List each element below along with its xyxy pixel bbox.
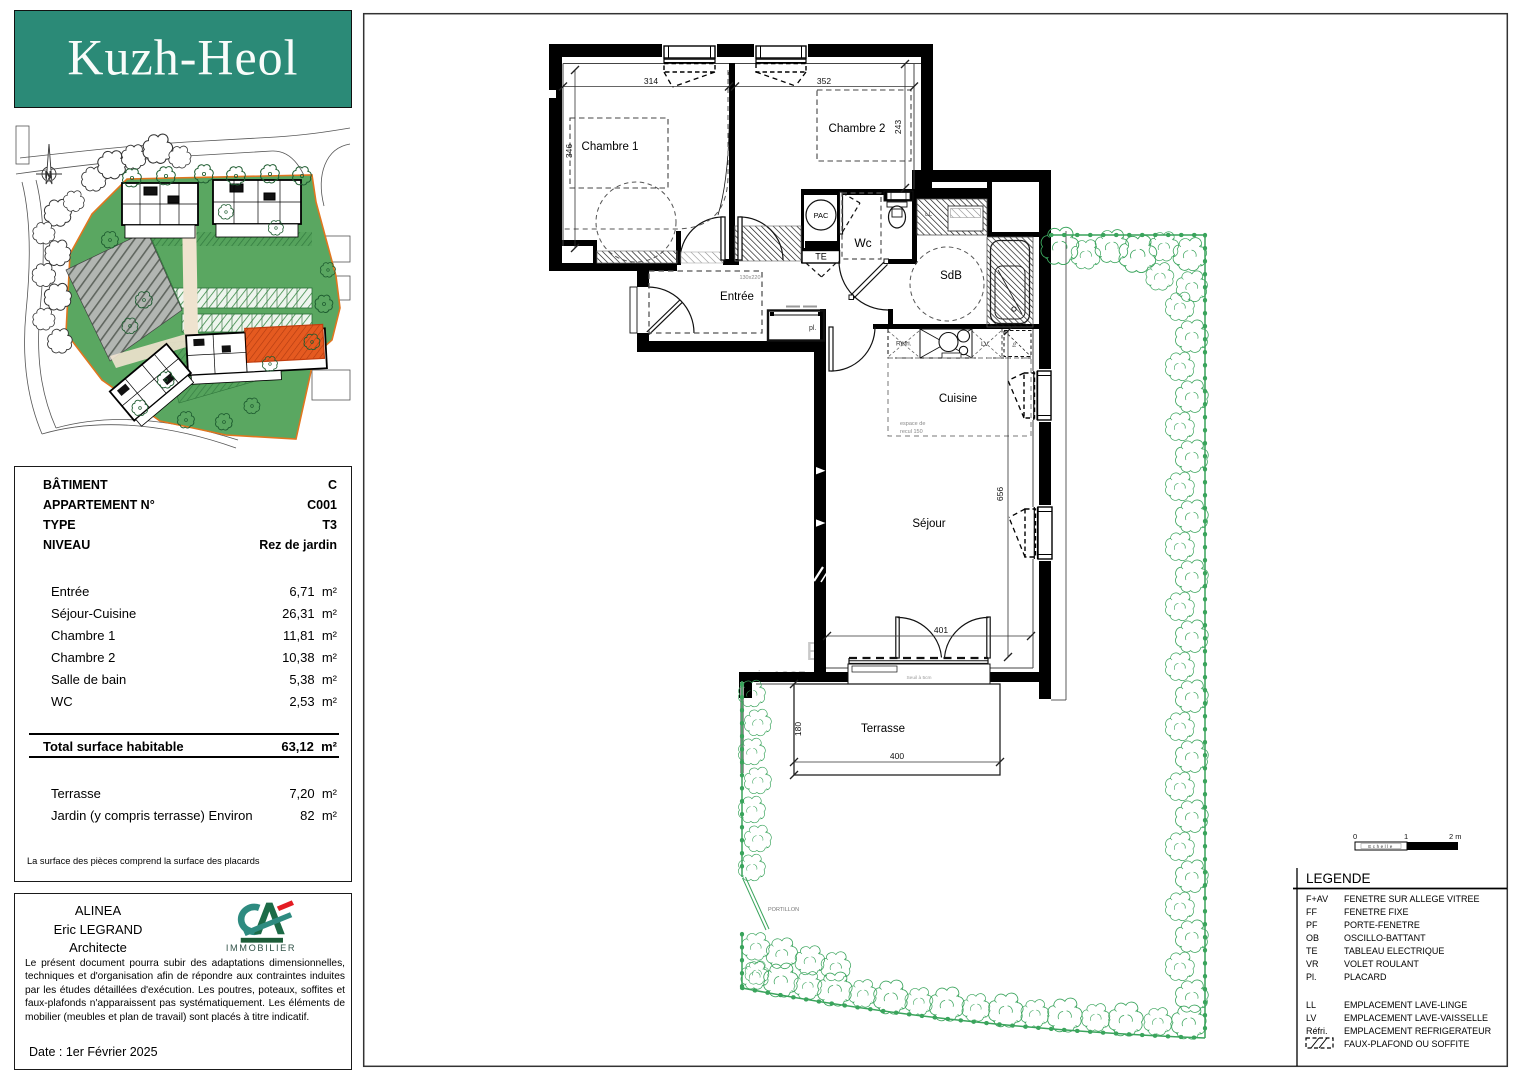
svg-text:PORTILLON: PORTILLON bbox=[768, 907, 799, 913]
svg-text:FENETRE SUR ALLEGE VITREE: FENETRE SUR ALLEGE VITREE bbox=[1344, 894, 1480, 904]
svg-text:656: 656 bbox=[995, 487, 1005, 501]
svg-text:TE: TE bbox=[1306, 946, 1318, 956]
svg-text:Chambre 1: Chambre 1 bbox=[582, 141, 639, 153]
svg-text:OB: OB bbox=[1306, 933, 1319, 943]
svg-text:Echelle: Echelle bbox=[1368, 844, 1394, 849]
svg-text:PORTE-FENETRE: PORTE-FENETRE bbox=[1344, 920, 1420, 930]
svg-text:OSCILLO-BATTANT: OSCILLO-BATTANT bbox=[1344, 933, 1426, 943]
svg-text:EMPLACEMENT LAVE-VAISSELLE: EMPLACEMENT LAVE-VAISSELLE bbox=[1344, 1013, 1488, 1023]
svg-text:400: 400 bbox=[890, 751, 904, 761]
svg-text:VR: VR bbox=[1306, 959, 1319, 969]
svg-text:FF: FF bbox=[1306, 907, 1317, 917]
svg-text:IMMOBILIER: IMMOBILIER bbox=[226, 943, 296, 952]
svg-text:180: 180 bbox=[793, 722, 803, 736]
svg-text:2 m: 2 m bbox=[1449, 832, 1462, 841]
svg-text:espace de: espace de bbox=[900, 421, 925, 427]
svg-text:314: 314 bbox=[644, 76, 658, 86]
svg-text:TABLEAU ELECTRIQUE: TABLEAU ELECTRIQUE bbox=[1344, 946, 1444, 956]
svg-text:LEGENDE: LEGENDE bbox=[1306, 871, 1371, 886]
svg-text:130x220: 130x220 bbox=[739, 275, 760, 281]
svg-text:F+AV: F+AV bbox=[1306, 894, 1328, 904]
svg-text:LV: LV bbox=[981, 341, 989, 348]
svg-text:243: 243 bbox=[893, 120, 903, 134]
svg-text:N: N bbox=[45, 170, 52, 180]
svg-text:401: 401 bbox=[934, 625, 948, 635]
svg-text:pl.: pl. bbox=[809, 325, 816, 332]
svg-text:1: 1 bbox=[1404, 832, 1408, 841]
svg-text:Wc: Wc bbox=[854, 236, 871, 250]
svg-text:Séjour: Séjour bbox=[912, 518, 945, 530]
svg-text:PLACARD: PLACARD bbox=[1344, 972, 1387, 982]
svg-text:0: 0 bbox=[1353, 832, 1357, 841]
svg-text:fo: fo bbox=[1012, 342, 1018, 347]
svg-text:recul 150: recul 150 bbox=[900, 429, 923, 435]
svg-text:PF: PF bbox=[1306, 920, 1318, 930]
svg-text:EMPLACEMENT REFRIGERATEUR: EMPLACEMENT REFRIGERATEUR bbox=[1344, 1026, 1492, 1036]
svg-text:Chambre 2: Chambre 2 bbox=[829, 123, 886, 135]
svg-text:LL: LL bbox=[925, 211, 933, 218]
svg-text:FENETRE FIXE: FENETRE FIXE bbox=[1344, 907, 1409, 917]
svg-text:Seuil à 5cm: Seuil à 5cm bbox=[906, 675, 931, 681]
svg-text:VOLET ROULANT: VOLET ROULANT bbox=[1344, 959, 1419, 969]
svg-text:Terrasse: Terrasse bbox=[861, 723, 905, 735]
svg-text:Pl.: Pl. bbox=[1306, 972, 1317, 982]
svg-text:LV: LV bbox=[1306, 1013, 1316, 1023]
svg-text:TE: TE bbox=[815, 252, 827, 262]
svg-text:352: 352 bbox=[817, 76, 831, 86]
svg-text:Entrée: Entrée bbox=[720, 291, 754, 303]
svg-text:Réfri.: Réfri. bbox=[896, 341, 912, 348]
svg-text:FAUX-PLAFOND OU SOFFITE: FAUX-PLAFOND OU SOFFITE bbox=[1344, 1039, 1470, 1049]
svg-text:PAC: PAC bbox=[814, 211, 829, 220]
svg-text:EMPLACEMENT LAVE-LINGE: EMPLACEMENT LAVE-LINGE bbox=[1344, 1000, 1467, 1010]
svg-text:LL: LL bbox=[1306, 1000, 1316, 1010]
svg-text:SdB: SdB bbox=[940, 270, 962, 282]
svg-text:346: 346 bbox=[564, 144, 574, 158]
svg-text:Cuisine: Cuisine bbox=[939, 393, 977, 405]
svg-text:Réfri.: Réfri. bbox=[1306, 1026, 1328, 1036]
